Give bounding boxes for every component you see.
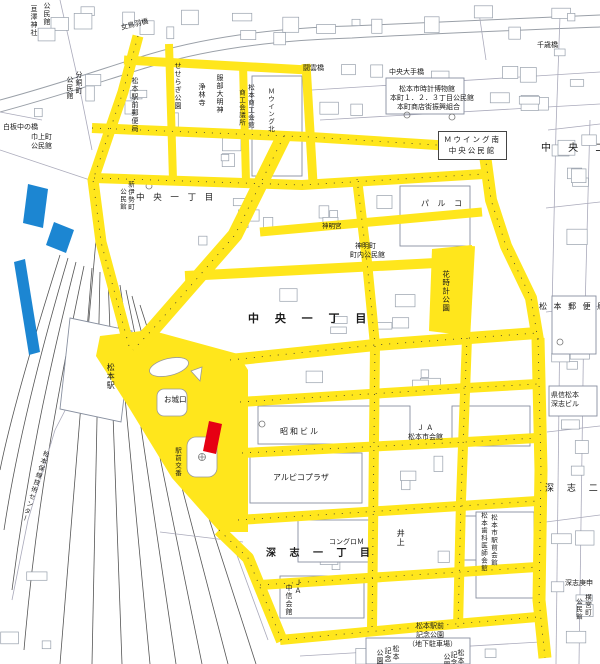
building-outline	[490, 93, 509, 103]
building-outline	[377, 196, 392, 209]
building-outline	[27, 572, 47, 580]
building-outline	[86, 86, 95, 101]
building-outline	[425, 17, 440, 33]
building-outline	[371, 65, 383, 77]
building-outline	[571, 169, 586, 183]
building-outline	[551, 582, 564, 592]
building-outline	[38, 28, 55, 41]
city-map: 女鳥羽橋千歳橋闘雲橋中央大手橋松本市時計博物館本町１．２．３丁目公民館本町商店街…	[0, 0, 600, 664]
building-outline	[319, 206, 329, 218]
building-outline	[561, 420, 579, 429]
building-outline	[283, 17, 299, 32]
building-outline	[392, 318, 408, 328]
building-outline	[331, 327, 347, 334]
building-outline	[125, 101, 135, 114]
building-outline	[519, 96, 539, 104]
building-outline	[554, 49, 565, 56]
building-outline	[241, 30, 256, 39]
building-outline	[577, 605, 594, 617]
blue-highlight-platform	[14, 259, 40, 355]
building-outline	[570, 80, 583, 87]
building-outline	[280, 289, 297, 302]
building-outline	[372, 19, 382, 33]
building-outline	[576, 531, 595, 545]
building-outline	[474, 6, 492, 18]
building-outline	[167, 27, 174, 39]
building-outline	[576, 595, 592, 601]
building-outline	[509, 27, 521, 39]
building-outline	[182, 10, 199, 25]
building-outline	[320, 102, 339, 114]
building-outline	[395, 295, 415, 307]
building-outline	[42, 641, 51, 649]
building-outline	[221, 154, 229, 160]
building-outline	[342, 65, 356, 75]
building-outline	[351, 104, 363, 115]
building-outline	[130, 90, 147, 97]
building-outline	[123, 12, 135, 25]
building-outline	[401, 471, 416, 480]
building-outline	[485, 649, 496, 658]
building-outline	[317, 25, 336, 34]
building-outline	[552, 534, 572, 544]
building-outline	[199, 236, 207, 245]
building-outline	[566, 631, 586, 643]
blue-highlight-building-2	[46, 222, 74, 253]
building-outline	[434, 456, 443, 471]
building-outline	[582, 135, 597, 146]
building-outline	[306, 371, 322, 383]
building-outline	[1, 632, 19, 644]
map-canvas	[0, 0, 600, 664]
building-outline	[356, 648, 367, 664]
building-outline	[575, 441, 588, 454]
building-outline	[334, 316, 347, 323]
building-outline	[567, 229, 587, 244]
building-outline	[520, 68, 536, 83]
building-outline	[86, 75, 101, 86]
building-outline	[232, 13, 251, 21]
building-outline	[568, 13, 575, 21]
building-outline	[74, 13, 92, 29]
building-outline	[571, 466, 584, 475]
building-outline	[567, 361, 577, 369]
building-outline	[274, 33, 286, 45]
building-outline	[140, 21, 154, 35]
building-outline	[558, 140, 575, 155]
building-outline	[552, 353, 570, 362]
building-outline	[421, 370, 429, 378]
building-outline	[503, 66, 518, 78]
building-outline	[222, 138, 241, 151]
building-outline	[35, 108, 43, 116]
building-outline	[438, 551, 449, 562]
building-outline	[352, 19, 360, 25]
blue-highlight-building-1	[23, 184, 48, 228]
